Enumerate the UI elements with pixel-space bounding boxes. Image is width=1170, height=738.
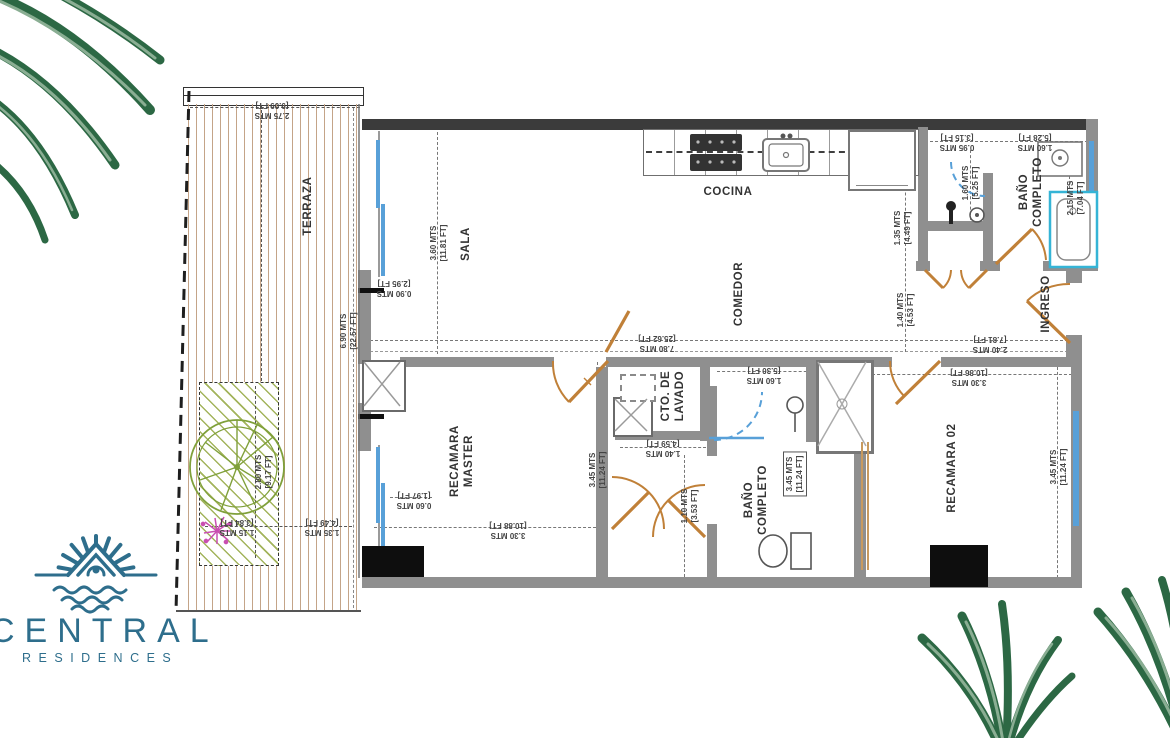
- kitchen-sink: [763, 134, 809, 172]
- dimension-label: 1.40 MTS [4.59 FT]: [646, 438, 681, 458]
- door-arc: [553, 229, 1070, 537]
- room-label-cto-lavado: CTO. DE LAVADO: [660, 371, 688, 422]
- room-label-bano-completo: BAÑO COMPLETO: [743, 465, 771, 535]
- dimension-label: 3.45 MTS [11.24 FT]: [588, 452, 608, 489]
- toilet: [946, 201, 956, 224]
- dimension-label: 6.90 MTS [22.57 FT]: [339, 312, 359, 349]
- dimension-label: 1.35 MTS [4.49 FT]: [893, 211, 913, 246]
- palm-leaf-top-left: [0, 0, 160, 240]
- room-label-terraza: TERRAZA: [302, 176, 316, 235]
- palm-leaf-right-edge: [1098, 580, 1170, 738]
- dimension-label: 1.60 MTS [5.30 FT]: [747, 365, 782, 385]
- dimension-label: 3.45 MTS [11.24 FT]: [1049, 449, 1069, 486]
- dimension-label: 3.45 MTS [11.24 FT]: [783, 452, 807, 497]
- room-label-recamara-master: RECAMARA MASTER: [449, 425, 477, 497]
- logo-subtitle: RESIDENCES: [22, 651, 178, 665]
- dimension-label: 3.30 MTS [10.86 FT]: [950, 367, 987, 387]
- dimension-label: 1.35 MTS [4.49 FT]: [305, 517, 340, 537]
- dimension-label: 2.80 MTS [9.17 FT]: [254, 455, 274, 490]
- duct-x-pattern: [364, 362, 647, 431]
- door-arc-blue: [709, 162, 985, 440]
- dimension-label: 1.60 MTS [5.28 FT]: [1018, 132, 1053, 152]
- stove: [690, 134, 742, 171]
- room-label-ingreso: INGRESO: [1040, 275, 1054, 332]
- powder-sink: [970, 208, 984, 222]
- room-label-recamara-02: RECAMARA 02: [946, 423, 960, 512]
- dimension-label: 0.90 MTS [2.95 FT]: [377, 278, 412, 298]
- palm-leaf-bottom-right: [922, 604, 1072, 738]
- dimension-label: 2.75 MTS [9.09 FT]: [255, 100, 290, 120]
- dimension-label: 0.60 MTS [1.97 FT]: [397, 490, 432, 510]
- dimension-label: 0.95 MTS [3.15 FT]: [940, 132, 975, 152]
- dimension-label: 3.30 MTS [10.88 FT]: [489, 520, 526, 540]
- logo-title: CENTRAL: [0, 612, 219, 651]
- dimension-label: 3.60 MTS [11.81 FT]: [429, 225, 449, 262]
- dimension-label: 1.15 MTS [3.84 FT]: [220, 517, 255, 537]
- shower-x-pattern: [818, 362, 866, 446]
- dimension-label: 7.80 MTS [25.62 FT]: [638, 333, 675, 353]
- dimension-label: 2.15 MTS [7.04 FT]: [1066, 181, 1086, 216]
- room-label-cocina: COCINA: [704, 186, 753, 200]
- room-label-comedor: COMEDOR: [733, 262, 747, 326]
- room-label-sala: SALA: [460, 227, 474, 261]
- dimension-label: 1.40 MTS [4.53 FT]: [896, 293, 916, 328]
- logo-icon: [34, 528, 158, 616]
- dimension-label: 2.40 MTS [7.81 FT]: [973, 334, 1008, 354]
- room-label-bano-completo-superior: BAÑO COMPLETO: [1018, 157, 1046, 227]
- dimension-label: 1.60 MTS [5.25 FT]: [961, 166, 981, 201]
- pedestal-sink: [787, 397, 803, 432]
- floor-plan: TERRAZA SALA COCINA COMEDOR BAÑO COMPLET…: [0, 0, 1170, 738]
- dimension-label: 1.10 MTS [3.53 FT]: [680, 489, 700, 524]
- toilet: [759, 533, 811, 569]
